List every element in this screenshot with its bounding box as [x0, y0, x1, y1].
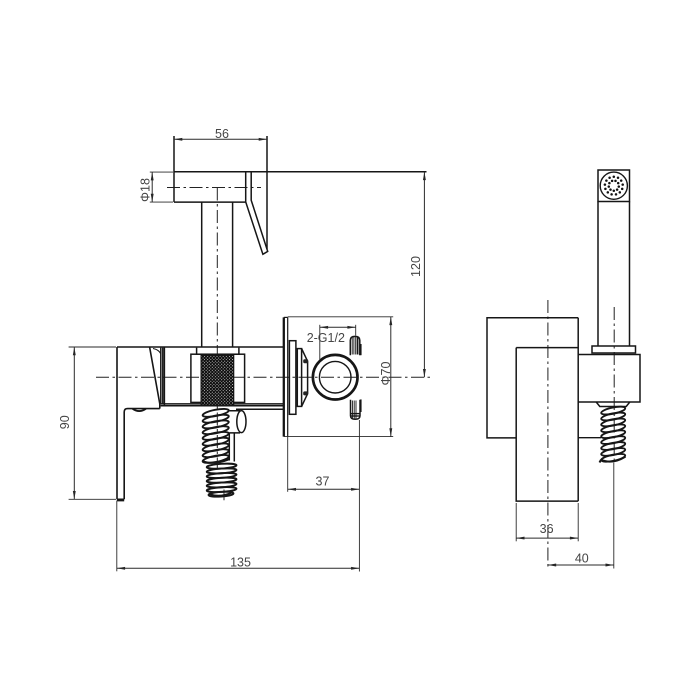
svg-text:135: 135 [230, 555, 251, 569]
svg-text:2-G1/2: 2-G1/2 [307, 331, 345, 345]
svg-text:Φ18: Φ18 [139, 178, 153, 202]
svg-text:40: 40 [575, 551, 589, 565]
svg-text:Φ70: Φ70 [379, 362, 393, 386]
svg-text:90: 90 [58, 415, 72, 429]
svg-text:36: 36 [540, 522, 554, 536]
svg-text:120: 120 [409, 256, 423, 277]
svg-text:37: 37 [316, 474, 330, 488]
